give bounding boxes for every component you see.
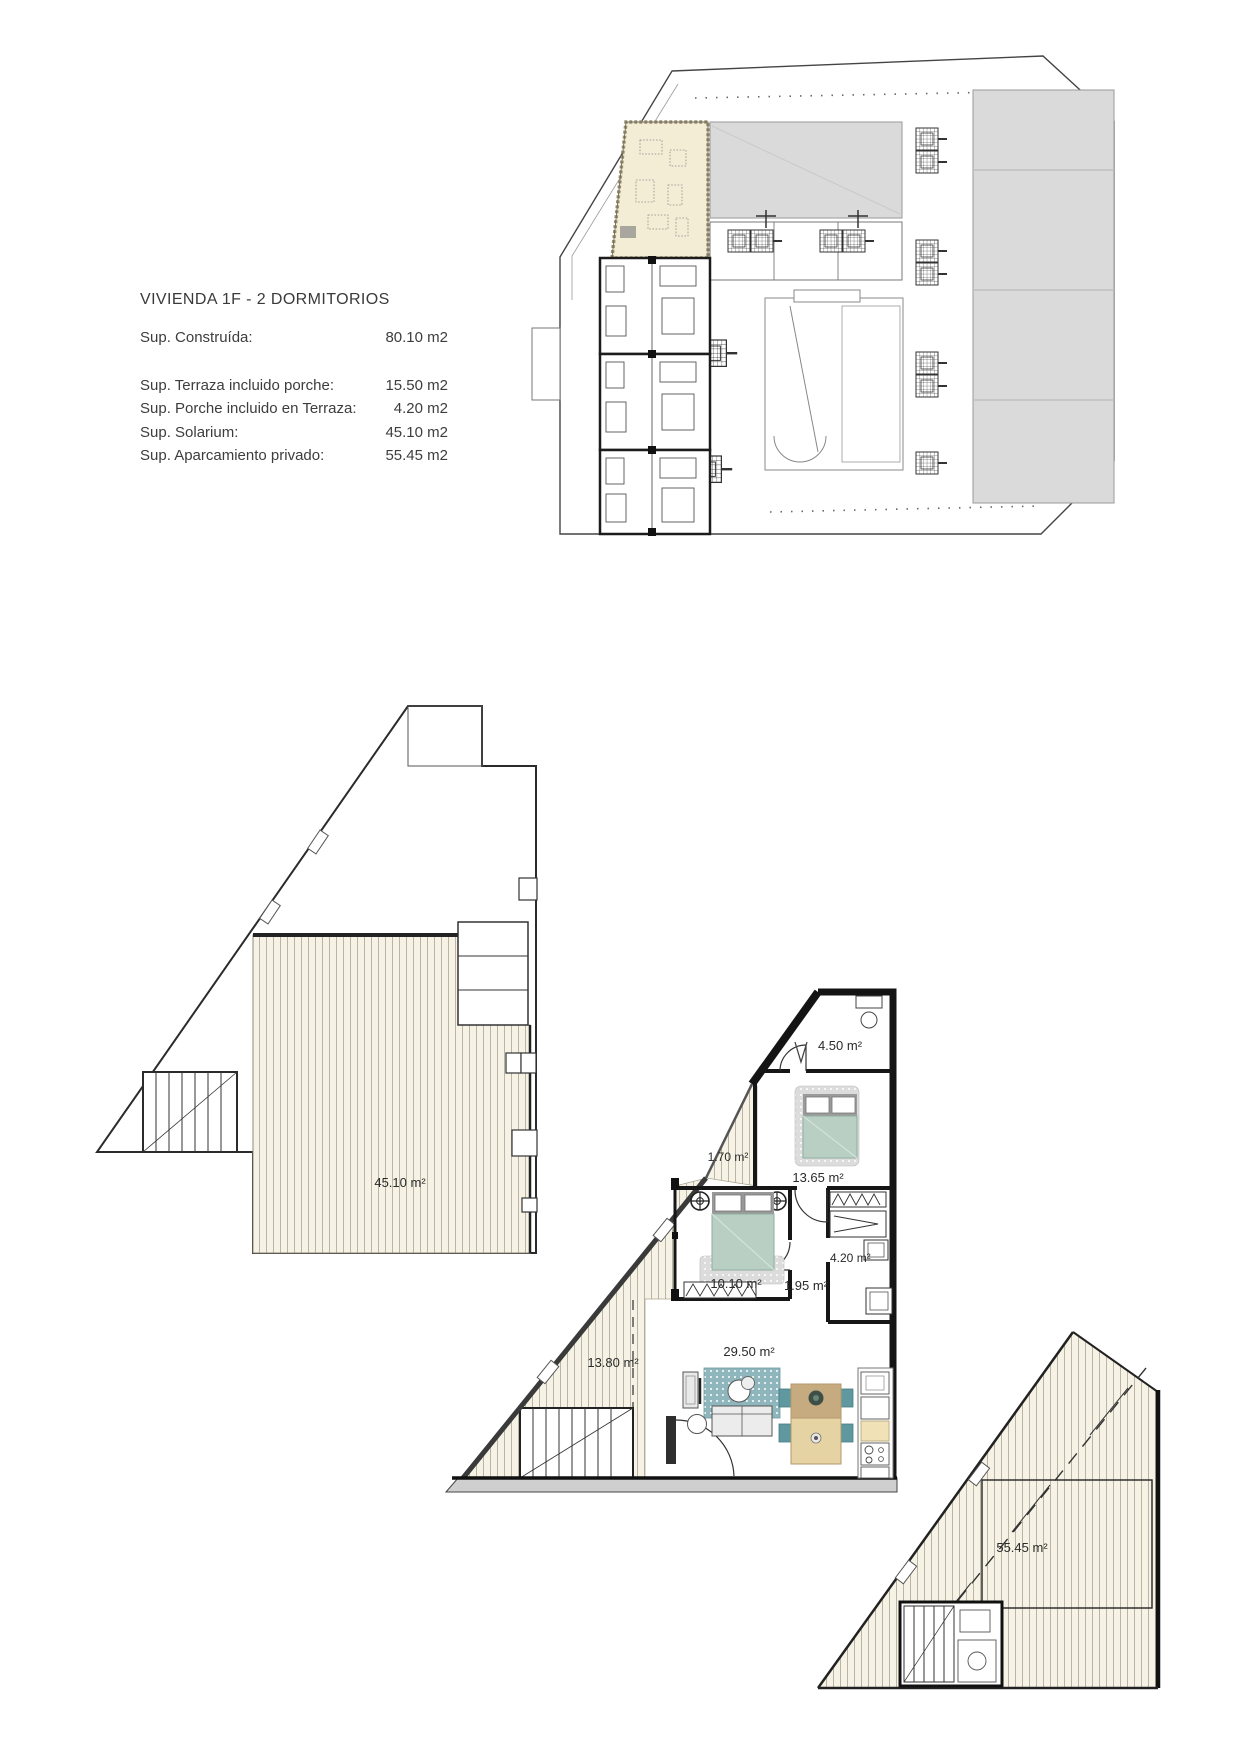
site-plan: [532, 56, 1114, 536]
living-furniture: [683, 1368, 893, 1478]
armchair-icon: [688, 1415, 707, 1434]
room-area-label: 13.65 m²: [792, 1170, 844, 1185]
room-area-label: 1.70 m²: [708, 1150, 749, 1164]
parking-stairs-icon: [900, 1602, 1002, 1686]
plans-canvas: 45.10 m²: [0, 0, 1241, 1755]
main-bedroom-furniture: [795, 1086, 859, 1166]
front-terrace: [706, 1086, 757, 1186]
bed-icon: [803, 1094, 857, 1158]
dining-table-icon: [779, 1384, 853, 1464]
bed-icon: [712, 1192, 774, 1270]
room-area-label: 10.10 m²: [710, 1276, 762, 1291]
unit-column: [600, 256, 710, 536]
room-area-label: 1.95 m²: [784, 1278, 829, 1293]
room-area-label: 4.20 m²: [830, 1251, 871, 1265]
stove-icon: [861, 1443, 889, 1465]
highlighted-unit-1f: [612, 122, 708, 258]
room-area-label: 4.50 m²: [818, 1038, 863, 1053]
roof-area-right: [973, 90, 1114, 503]
kitchen-icon: [858, 1368, 893, 1478]
room-area-label: 55.45 m²: [996, 1540, 1048, 1555]
ceiling-light-icon: [691, 1192, 709, 1210]
wardrobe-icon: [830, 1192, 886, 1207]
solarium-stairs-icon: [143, 1072, 237, 1152]
fridge-icon: [866, 1288, 892, 1314]
wardrobe-hanging-icon: [830, 1211, 886, 1237]
tv-unit-icon: [683, 1372, 700, 1408]
toilet-icon: [856, 996, 882, 1008]
room-area-label: 13.80 m²: [587, 1355, 639, 1370]
floorplan-sheet: VIVIENDA 1F - 2 DORMITORIOS Sup. Constru…: [0, 0, 1241, 1755]
solarium-plan: 45.10 m²: [97, 706, 537, 1253]
sofa-icon: [712, 1406, 772, 1436]
courtyard: [765, 290, 903, 470]
ground-line: [446, 1478, 897, 1492]
room-area-label: 45.10 m²: [374, 1175, 426, 1190]
room-area-label: 29.50 m²: [723, 1344, 775, 1359]
terrace-stairs-icon: [520, 1408, 633, 1478]
